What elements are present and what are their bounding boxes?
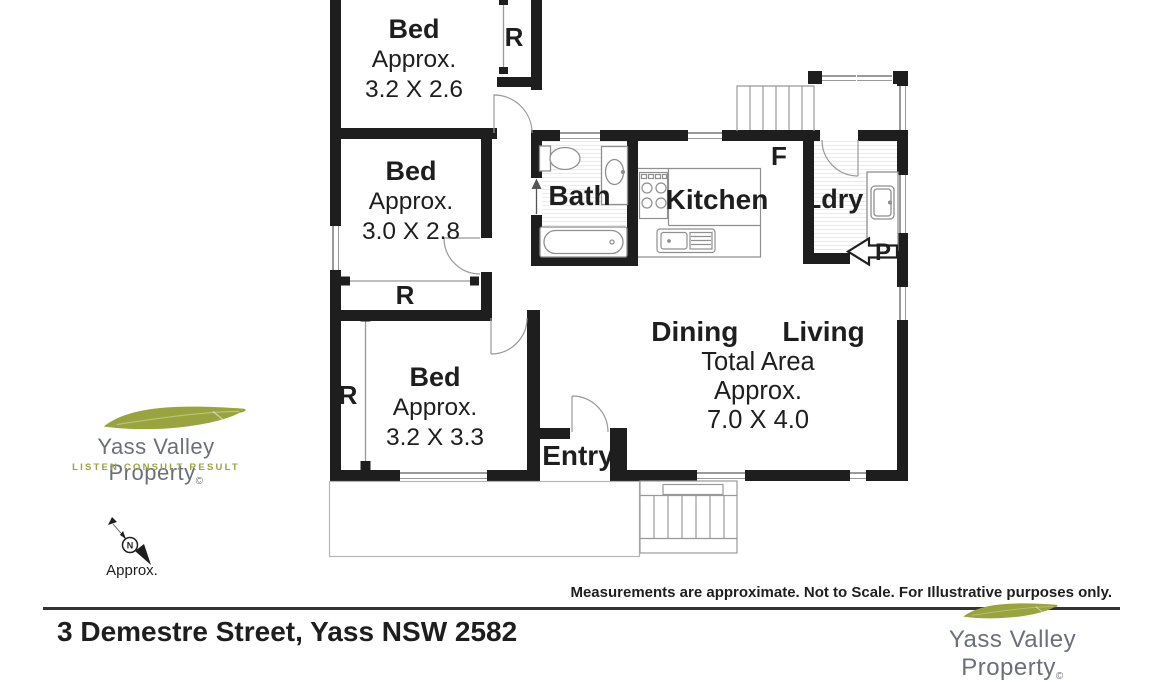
window <box>850 470 866 481</box>
room-name: Bed <box>336 156 486 187</box>
dining-living-row: Dining Living <box>600 316 916 348</box>
wall-segment <box>897 233 908 287</box>
wall-segment <box>540 428 570 439</box>
room-label-bed3: Bed Approx. 3.2 X 3.3 <box>360 362 510 453</box>
room-dims: 3.2 X 3.3 <box>360 423 510 453</box>
robe-marker: R <box>330 380 366 411</box>
wall-segment <box>803 253 850 264</box>
porch-post <box>808 71 822 84</box>
agency-mark: © <box>196 476 204 487</box>
room-label-bath: Bath <box>532 180 627 211</box>
total-area-label: Total Area <box>600 348 916 377</box>
property-address: 3 Demestre Street, Yass NSW 2582 <box>57 616 517 648</box>
agency-tagline: LISTEN CONSULT RESULT <box>50 462 262 473</box>
window <box>822 73 856 83</box>
disclaimer-text: Measurements are approximate. Not to Sca… <box>570 584 1112 601</box>
room-dims: 3.2 X 2.6 <box>338 75 490 105</box>
compass-north-letter: N <box>127 541 134 551</box>
wall-segment <box>531 141 542 178</box>
steps-front <box>640 481 737 553</box>
window <box>560 130 600 141</box>
stairs-rear <box>737 86 814 131</box>
window <box>400 470 487 481</box>
agency-mark: © <box>1056 671 1064 682</box>
wall-segment <box>745 470 850 481</box>
wall-segment <box>330 128 497 139</box>
wall-segment <box>627 141 638 266</box>
room-label-kitchen: Kitchen <box>662 184 772 215</box>
room-name: Bed <box>360 362 510 393</box>
compass: N <box>108 517 151 565</box>
room-label-laundry: Ldry <box>802 184 866 215</box>
wall-segment <box>627 470 697 481</box>
wall-segment <box>897 140 908 175</box>
compass-caption: Approx. <box>93 562 171 579</box>
room-approx: Approx. <box>338 45 490 75</box>
fridge-marker: F <box>762 141 796 172</box>
room-label-entry: Entry <box>538 440 618 471</box>
leaf-icon <box>962 600 1062 622</box>
wall-segment <box>897 71 908 86</box>
leaf-icon <box>98 402 256 434</box>
room-approx: Approx. <box>360 393 510 423</box>
room-name: Bed <box>338 14 490 45</box>
wall-segment <box>487 470 540 481</box>
agency-name: Yass Valley Property© <box>900 626 1125 682</box>
wall-segment <box>722 130 820 141</box>
wall-segment <box>330 310 491 321</box>
wall-segment <box>330 270 341 481</box>
room-approx: Approx. <box>336 187 486 217</box>
wall-segment <box>531 130 560 141</box>
door-bed1 <box>494 95 532 133</box>
agency-name: Yass Valley Property© <box>50 434 262 486</box>
robe-marker: R <box>355 280 455 311</box>
robe-marker: R <box>492 22 536 53</box>
wall-segment <box>600 130 688 141</box>
footer-divider <box>43 607 1120 610</box>
floorplan-page: { "floorplan": { "rooms": { "bed1": {"na… <box>0 0 1170 660</box>
approx-label: Approx. <box>600 377 916 406</box>
room-label-bed2: Bed Approx. 3.0 X 2.8 <box>336 156 486 247</box>
window <box>688 130 722 141</box>
window <box>897 175 908 233</box>
living-label: Living <box>782 316 864 348</box>
window <box>897 86 908 130</box>
window <box>857 73 892 83</box>
wall-segment <box>866 470 908 481</box>
dining-label: Dining <box>651 316 738 348</box>
room-label-dining-living: Dining Living Total Area Approx. 7.0 X 4… <box>600 316 916 435</box>
room-dims: 3.0 X 2.8 <box>336 217 486 247</box>
kitchen-sink <box>657 229 715 253</box>
door-bed3 <box>491 318 527 354</box>
porch-marker: P <box>869 239 897 267</box>
wall-segment <box>330 470 400 481</box>
window <box>697 470 745 481</box>
wall-segment <box>497 77 542 87</box>
room-label-bed1: Bed Approx. 3.2 X 2.6 <box>338 14 490 105</box>
dims-label: 7.0 X 4.0 <box>600 406 916 435</box>
plan-lineart: N <box>0 0 1170 660</box>
verandah-outline <box>330 482 640 557</box>
wall-segment <box>531 255 638 266</box>
